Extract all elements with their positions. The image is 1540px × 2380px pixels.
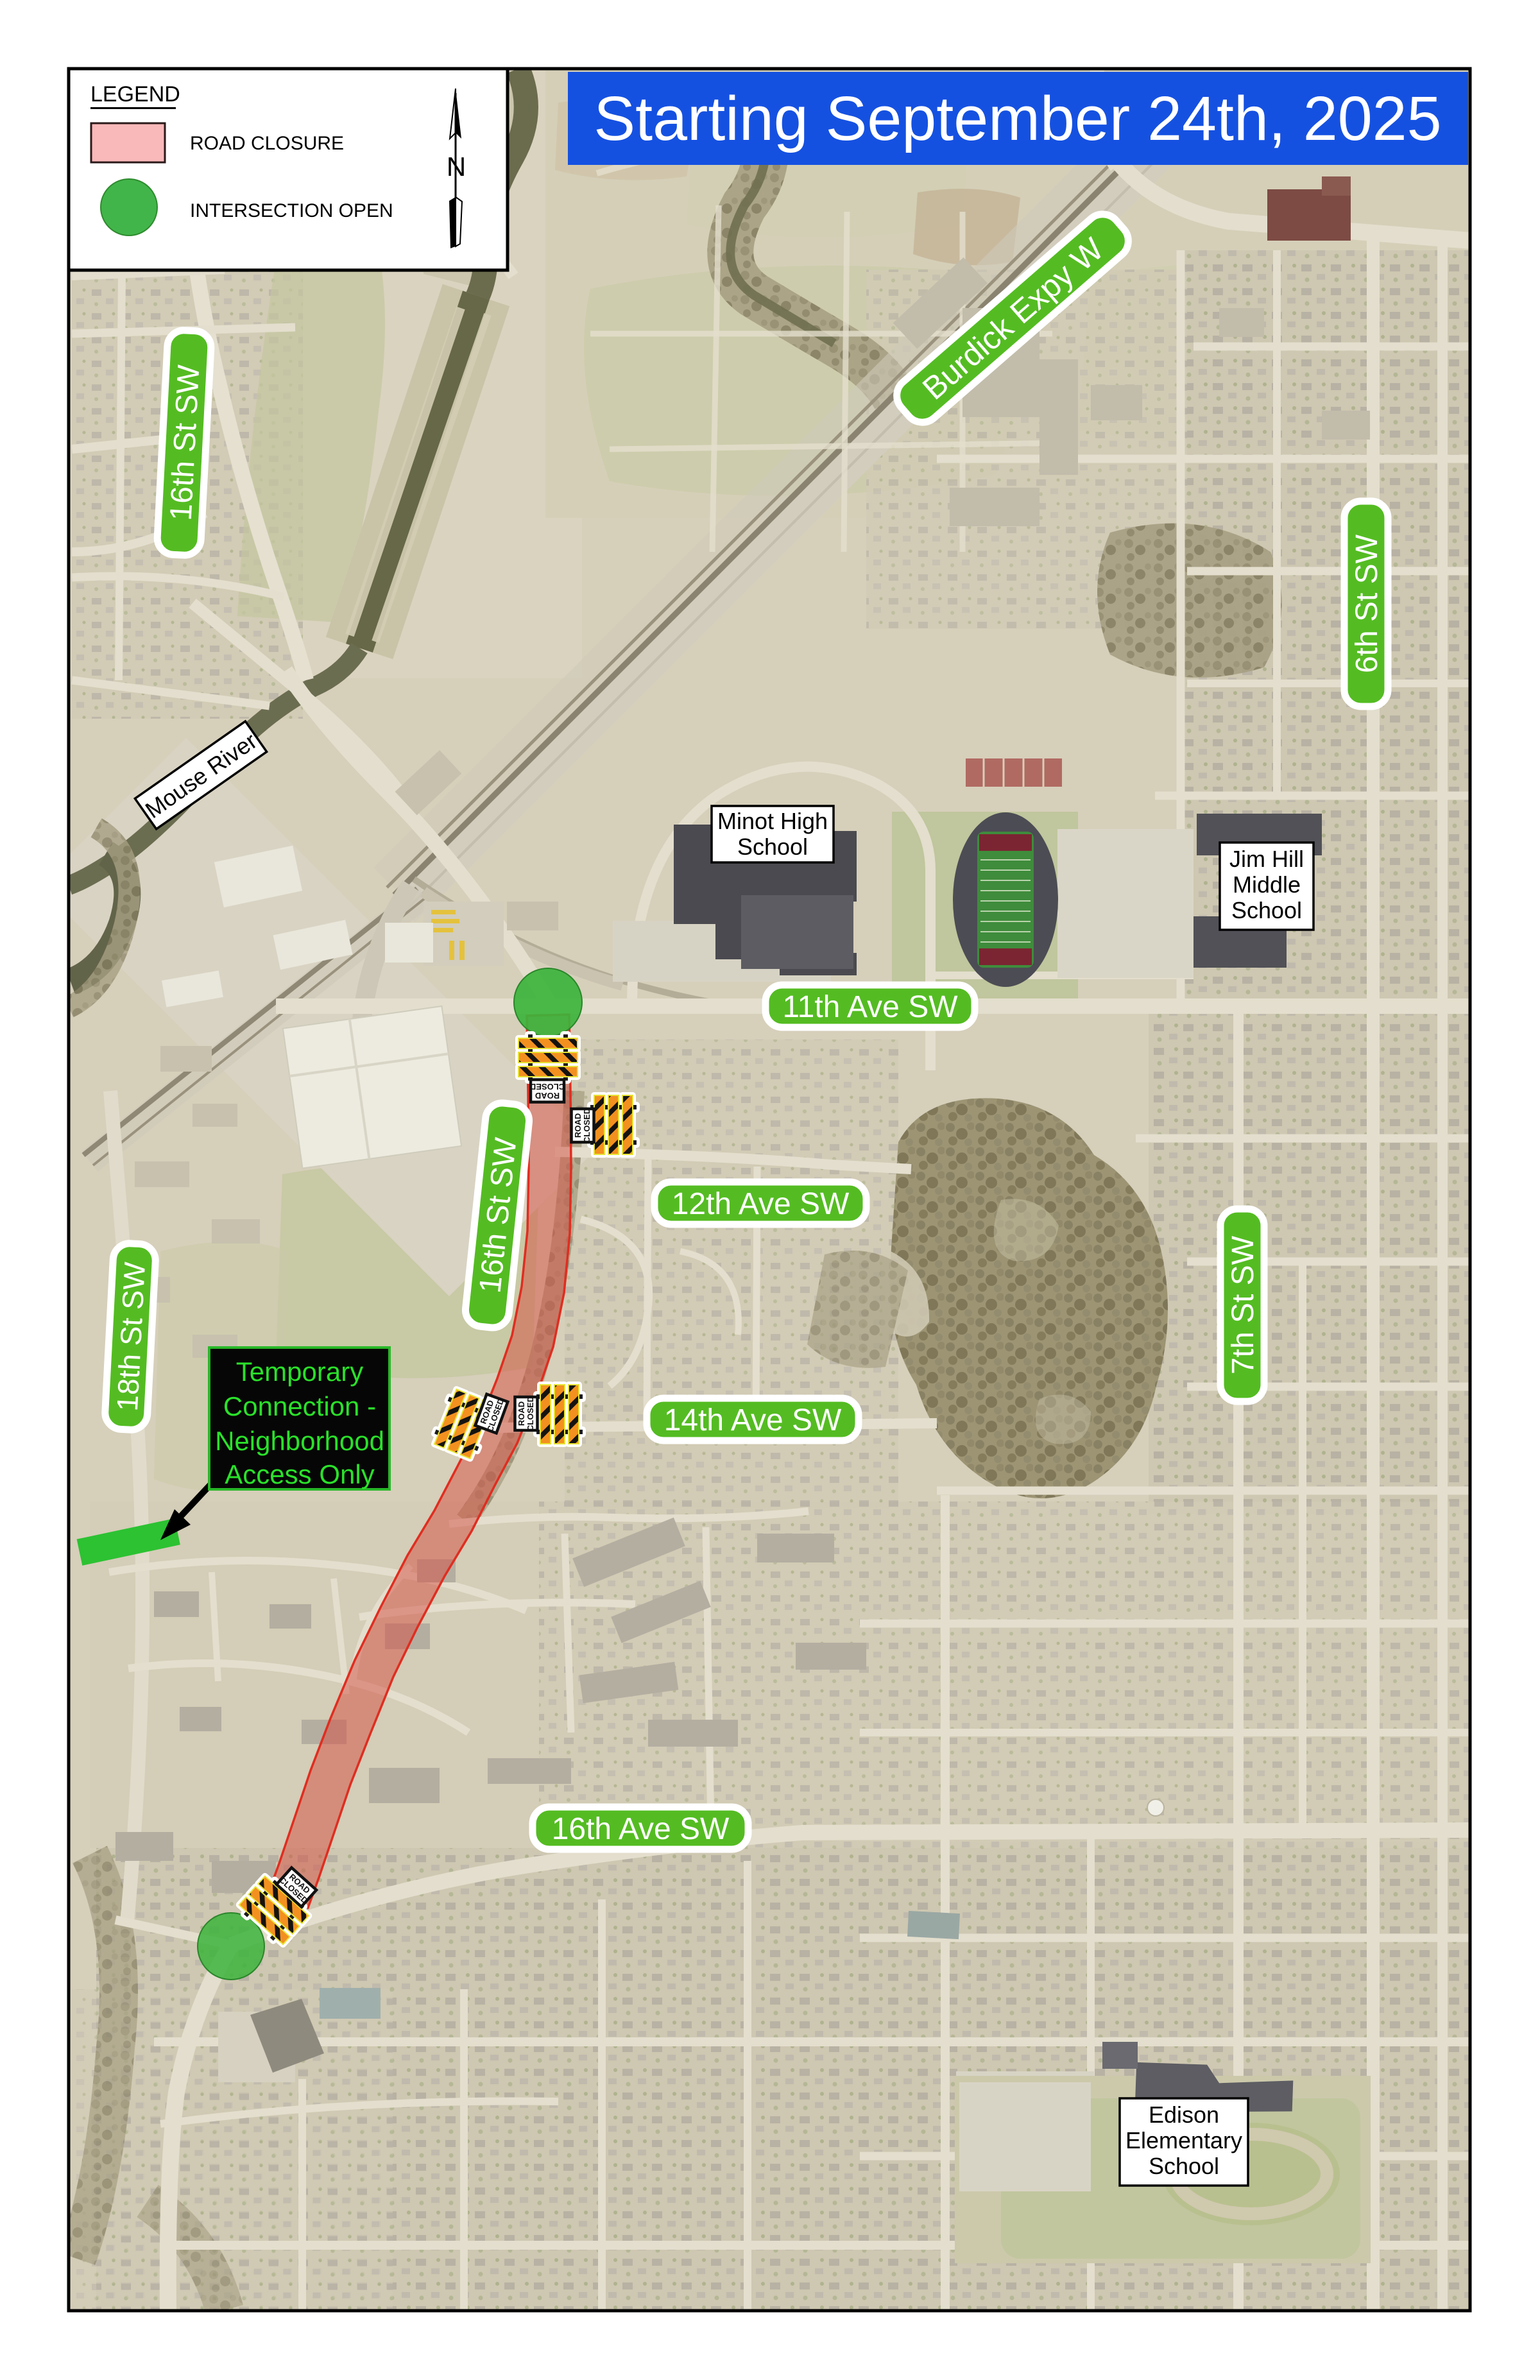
svg-text:Neighborhood: Neighborhood bbox=[215, 1426, 384, 1456]
svg-text:14th Ave SW: 14th Ave SW bbox=[664, 1403, 842, 1437]
svg-text:Temporary: Temporary bbox=[236, 1357, 363, 1387]
svg-text:11th Ave SW: 11th Ave SW bbox=[782, 990, 958, 1024]
svg-text:Jim Hill: Jim Hill bbox=[1229, 846, 1304, 872]
svg-text:12th Ave SW: 12th Ave SW bbox=[672, 1187, 850, 1221]
svg-text:ROAD CLOSURE: ROAD CLOSURE bbox=[190, 133, 344, 154]
svg-text:Middle: Middle bbox=[1233, 871, 1301, 898]
svg-text:6th St SW: 6th St SW bbox=[1350, 534, 1384, 673]
svg-text:INTERSECTION OPEN: INTERSECTION OPEN bbox=[190, 200, 393, 221]
svg-text:N: N bbox=[447, 151, 466, 182]
svg-text:School: School bbox=[737, 834, 808, 860]
svg-text:Connection -: Connection - bbox=[223, 1391, 376, 1421]
svg-text:Access Only: Access Only bbox=[225, 1459, 374, 1489]
svg-text:Minot High: Minot High bbox=[717, 808, 828, 834]
svg-text:16th Ave SW: 16th Ave SW bbox=[552, 1812, 730, 1846]
svg-text:School: School bbox=[1231, 897, 1302, 923]
svg-text:Starting September 24th, 2025: Starting September 24th, 2025 bbox=[594, 83, 1441, 153]
svg-text:Edison: Edison bbox=[1149, 2102, 1219, 2128]
svg-text:School: School bbox=[1149, 2153, 1219, 2179]
svg-text:Elementary: Elementary bbox=[1125, 2127, 1242, 2153]
svg-text:LEGEND: LEGEND bbox=[90, 82, 180, 107]
svg-text:7th St SW: 7th St SW bbox=[1226, 1235, 1260, 1374]
